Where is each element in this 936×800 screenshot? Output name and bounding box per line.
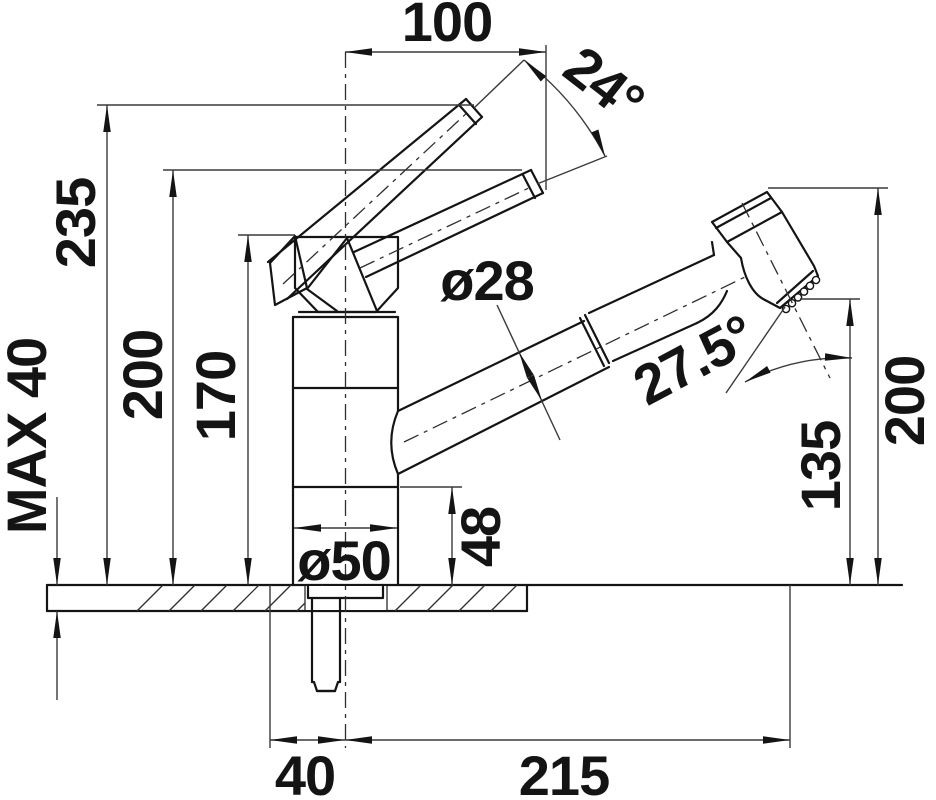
dim-base-diameter-label: ø50 <box>297 533 391 589</box>
technical-drawing-page: 100 24° 235 200 170 MAX 40 ø28 27.5° 135… <box>0 0 936 800</box>
dim-outlet-height-label: 135 <box>793 421 849 511</box>
dimension-arrow <box>519 352 534 378</box>
dimension-arrow <box>846 558 854 585</box>
dimension-arrowheads <box>53 48 882 744</box>
dim-top-projection-label: 100 <box>402 0 492 50</box>
spray-head <box>712 192 820 313</box>
dimension-arrow <box>846 299 854 326</box>
dimension-arrow <box>103 105 111 132</box>
cartridge-housing <box>295 237 398 312</box>
dimension-arrow <box>591 130 605 156</box>
dimension-arrow <box>527 375 542 401</box>
dim-max-thickness-label: MAX 40 <box>0 338 55 534</box>
dimension-arrow <box>825 353 852 360</box>
dimension-arrow <box>318 736 345 744</box>
countertop-section <box>47 585 902 611</box>
dimension-lines <box>57 45 888 748</box>
dim-hole-offset-label: 40 <box>275 748 335 800</box>
dim-spout-reach-label: 215 <box>519 748 609 800</box>
angle-arc-27-5 <box>745 358 852 382</box>
dimension-arrow <box>53 558 61 585</box>
dimension-arrow <box>745 366 771 382</box>
spray-head-cap <box>712 192 782 242</box>
dimension-arrow <box>169 558 177 585</box>
dimension-arrow <box>244 558 252 585</box>
dimension-arrow <box>169 170 177 197</box>
dimension-arrow <box>103 558 111 585</box>
dim-base-height-label: 48 <box>453 507 509 567</box>
dimension-arrow <box>524 60 546 81</box>
dimension-arrow <box>763 736 790 744</box>
dim-overall-height-label: 235 <box>48 178 104 268</box>
swivel-curve <box>391 411 398 474</box>
dimension-arrow <box>519 48 546 56</box>
dimension-arrow <box>345 48 372 56</box>
dimension-arrow <box>270 736 297 744</box>
dim-lever-height-label: 200 <box>115 330 171 420</box>
dim-spout-diameter-label: ø28 <box>440 253 534 309</box>
dim-head-height-label: 200 <box>877 356 933 446</box>
dim-body-height-label: 170 <box>188 351 244 441</box>
dimension-arrow <box>244 235 252 262</box>
dimension-arrow <box>345 736 372 744</box>
dimension-arrow <box>874 188 882 215</box>
dimension-arrow <box>874 558 882 585</box>
center-lines <box>283 52 830 748</box>
dimension-arrow <box>53 611 61 638</box>
